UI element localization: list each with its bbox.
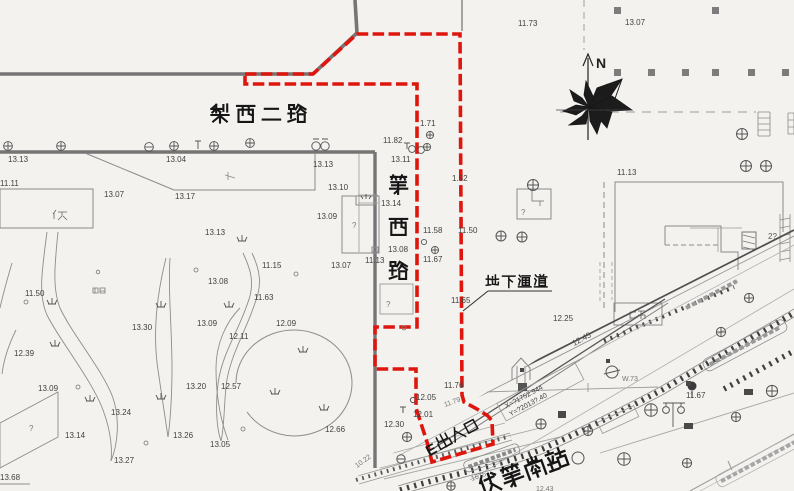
svg-text:12.09: 12.09 (276, 319, 297, 328)
svg-text:13.26: 13.26 (173, 431, 194, 440)
svg-text:12.05: 12.05 (416, 393, 437, 402)
svg-text:13.13: 13.13 (8, 155, 29, 164)
svg-text:12.01: 12.01 (413, 410, 434, 419)
svg-text:13.07: 13.07 (625, 18, 646, 27)
svg-text:?: ? (352, 221, 357, 230)
svg-text:11.15: 11.15 (262, 261, 282, 270)
svg-text:13.14: 13.14 (65, 431, 86, 440)
svg-text:12.25: 12.25 (553, 314, 574, 323)
svg-text:?: ? (521, 208, 526, 217)
svg-text:12.66: 12.66 (325, 425, 346, 434)
svg-text:11.50: 11.50 (458, 226, 478, 235)
svg-text:13.09: 13.09 (197, 319, 218, 328)
svg-text:11.73: 11.73 (518, 19, 538, 28)
svg-text:13.11: 13.11 (391, 155, 411, 164)
svg-text:13.14: 13.14 (381, 199, 402, 208)
svg-text:13.05: 13.05 (210, 440, 231, 449)
svg-text:13.04: 13.04 (166, 155, 187, 164)
svg-text:13.08: 13.08 (208, 277, 229, 286)
svg-text:11.13: 11.13 (365, 256, 385, 265)
svg-text:11.67: 11.67 (686, 391, 706, 400)
svg-text:11.82: 11.82 (383, 136, 403, 145)
svg-text:13.20: 13.20 (186, 382, 207, 391)
svg-text:N: N (596, 55, 606, 71)
svg-text:13.10: 13.10 (328, 183, 349, 192)
svg-text:12.43: 12.43 (536, 486, 554, 491)
svg-text:11.11: 11.11 (0, 179, 19, 188)
svg-text:11.76: 11.76 (444, 381, 464, 390)
svg-text:12.11: 12.11 (229, 332, 249, 341)
svg-text:12.39: 12.39 (14, 349, 35, 358)
svg-text:11.67: 11.67 (423, 255, 443, 264)
svg-text:13.13: 13.13 (313, 160, 334, 169)
svg-text:?: ? (29, 424, 34, 433)
svg-text:1.71: 1.71 (420, 119, 436, 128)
svg-text:13.09: 13.09 (38, 384, 59, 393)
svg-text:W.73: W.73 (622, 376, 638, 383)
svg-text:13.30: 13.30 (132, 323, 153, 332)
svg-text:13.27: 13.27 (114, 456, 135, 465)
svg-text:13.68: 13.68 (0, 473, 21, 482)
svg-text:11.63: 11.63 (254, 293, 274, 302)
svg-text:11.58: 11.58 (423, 226, 443, 235)
svg-text:11.13: 11.13 (617, 168, 637, 177)
svg-text:?: ? (386, 300, 391, 309)
svg-text:13.09: 13.09 (317, 212, 338, 221)
svg-text:13.07: 13.07 (104, 190, 125, 199)
svg-text:13.17: 13.17 (175, 192, 196, 201)
svg-text:13.07: 13.07 (331, 261, 352, 270)
svg-text:11.50: 11.50 (25, 289, 45, 298)
svg-text:13.08: 13.08 (388, 245, 409, 254)
svg-text:13.13: 13.13 (205, 228, 226, 237)
svg-text:12.57: 12.57 (221, 382, 242, 391)
svg-text:12.30: 12.30 (384, 420, 405, 429)
svg-text:1.62: 1.62 (452, 174, 468, 183)
svg-text:13.24: 13.24 (111, 408, 132, 417)
svg-text:11.65: 11.65 (451, 296, 471, 305)
